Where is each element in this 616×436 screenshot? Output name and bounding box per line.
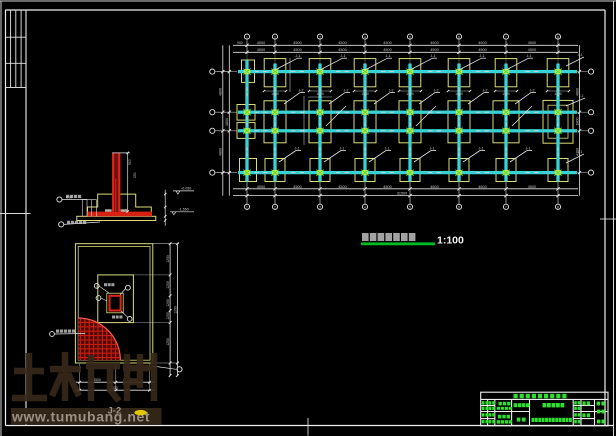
svg-text:1200: 1200 bbox=[166, 281, 170, 289]
svg-text:J-1: J-1 bbox=[480, 54, 485, 58]
svg-text:6: 6 bbox=[458, 35, 460, 39]
svg-text:4500: 4500 bbox=[478, 48, 486, 52]
svg-text:3: 3 bbox=[319, 35, 321, 39]
svg-text:J-2: J-2 bbox=[108, 406, 122, 417]
svg-text:1200: 1200 bbox=[166, 299, 170, 307]
svg-text:J-1: J-1 bbox=[526, 146, 531, 150]
svg-text:J-2: J-2 bbox=[530, 88, 535, 92]
svg-text:J-1: J-1 bbox=[340, 146, 345, 150]
svg-text:J-1: J-1 bbox=[578, 150, 583, 154]
svg-text:J-1: J-1 bbox=[578, 53, 583, 57]
svg-text:J-1: J-1 bbox=[386, 54, 391, 58]
svg-text:3: 3 bbox=[319, 206, 321, 210]
svg-text:J-2: J-2 bbox=[579, 94, 584, 98]
svg-text:7: 7 bbox=[505, 35, 507, 39]
svg-text:900: 900 bbox=[237, 41, 243, 45]
svg-text:2: 2 bbox=[274, 206, 276, 210]
svg-text:J-1: J-1 bbox=[385, 146, 390, 150]
svg-text:1: 1 bbox=[246, 206, 248, 210]
svg-text:1500: 1500 bbox=[361, 92, 369, 96]
svg-text:7: 7 bbox=[505, 206, 507, 210]
svg-text:4: 4 bbox=[364, 35, 366, 39]
svg-text:J-2: J-2 bbox=[389, 88, 394, 92]
svg-text:1200: 1200 bbox=[166, 255, 170, 263]
svg-text:31500: 31500 bbox=[397, 192, 408, 196]
svg-text:J-1: J-1 bbox=[431, 54, 436, 58]
svg-text:4500: 4500 bbox=[293, 48, 301, 52]
svg-text:J-1: J-1 bbox=[296, 54, 301, 58]
svg-text:1800: 1800 bbox=[225, 118, 229, 126]
svg-text:J-2: J-2 bbox=[434, 88, 439, 92]
svg-text:1200: 1200 bbox=[166, 338, 170, 346]
svg-text:J-2: J-2 bbox=[483, 88, 488, 92]
svg-text:4500: 4500 bbox=[430, 48, 438, 52]
svg-text:4500: 4500 bbox=[338, 48, 346, 52]
svg-text:4500: 4500 bbox=[528, 41, 536, 45]
svg-text:4500: 4500 bbox=[293, 185, 301, 189]
svg-text:4500: 4500 bbox=[383, 48, 391, 52]
svg-text:4500: 4500 bbox=[528, 185, 536, 189]
svg-text:www.tumubang.net: www.tumubang.net bbox=[11, 409, 150, 425]
svg-text:J-2: J-2 bbox=[344, 88, 349, 92]
svg-text:J-1: J-1 bbox=[341, 54, 346, 58]
svg-text:5: 5 bbox=[409, 206, 411, 210]
svg-text:4500: 4500 bbox=[293, 41, 301, 45]
svg-text:-0.050: -0.050 bbox=[181, 187, 191, 191]
svg-text:4500: 4500 bbox=[338, 185, 346, 189]
svg-text:500: 500 bbox=[128, 159, 132, 165]
svg-text:6: 6 bbox=[458, 206, 460, 210]
svg-text:4500: 4500 bbox=[528, 48, 536, 52]
svg-text:4500: 4500 bbox=[478, 41, 486, 45]
svg-text:1500: 1500 bbox=[271, 92, 279, 96]
svg-text:4500: 4500 bbox=[383, 41, 391, 45]
svg-text:2: 2 bbox=[274, 35, 276, 39]
svg-text:8: 8 bbox=[557, 35, 559, 39]
svg-text:4500: 4500 bbox=[430, 185, 438, 189]
svg-text:4500: 4500 bbox=[257, 48, 265, 52]
svg-text:1500: 1500 bbox=[316, 92, 324, 96]
svg-text:4500: 4500 bbox=[257, 185, 265, 189]
svg-text:J-1: J-1 bbox=[479, 146, 484, 150]
svg-text:J-1: J-1 bbox=[527, 54, 532, 58]
svg-text:1500: 1500 bbox=[554, 92, 562, 96]
svg-text:4500: 4500 bbox=[430, 41, 438, 45]
svg-text:J-1: J-1 bbox=[430, 146, 435, 150]
svg-text:4500: 4500 bbox=[383, 185, 391, 189]
svg-text:5: 5 bbox=[409, 35, 411, 39]
svg-text:1500: 1500 bbox=[502, 92, 510, 96]
svg-text:4500: 4500 bbox=[478, 185, 486, 189]
svg-text:J-1: J-1 bbox=[295, 146, 300, 150]
svg-text:3500: 3500 bbox=[93, 378, 101, 382]
svg-text:J-2: J-2 bbox=[299, 88, 304, 92]
svg-text:4800: 4800 bbox=[219, 88, 223, 96]
svg-text:1200: 1200 bbox=[173, 306, 177, 314]
svg-text:4800: 4800 bbox=[219, 148, 223, 156]
svg-text:8: 8 bbox=[557, 206, 559, 210]
svg-text:4: 4 bbox=[364, 206, 366, 210]
svg-text:250: 250 bbox=[133, 172, 137, 178]
svg-text:1500: 1500 bbox=[406, 92, 414, 96]
svg-text:-1.550: -1.550 bbox=[179, 208, 189, 212]
svg-text:1500: 1500 bbox=[455, 92, 463, 96]
svg-text:1:100: 1:100 bbox=[437, 235, 464, 247]
svg-text:4500: 4500 bbox=[257, 41, 265, 45]
svg-text:1: 1 bbox=[246, 35, 248, 39]
svg-text:4500: 4500 bbox=[338, 41, 346, 45]
svg-text:1800: 1800 bbox=[575, 118, 579, 126]
svg-text:1200: 1200 bbox=[166, 312, 170, 320]
